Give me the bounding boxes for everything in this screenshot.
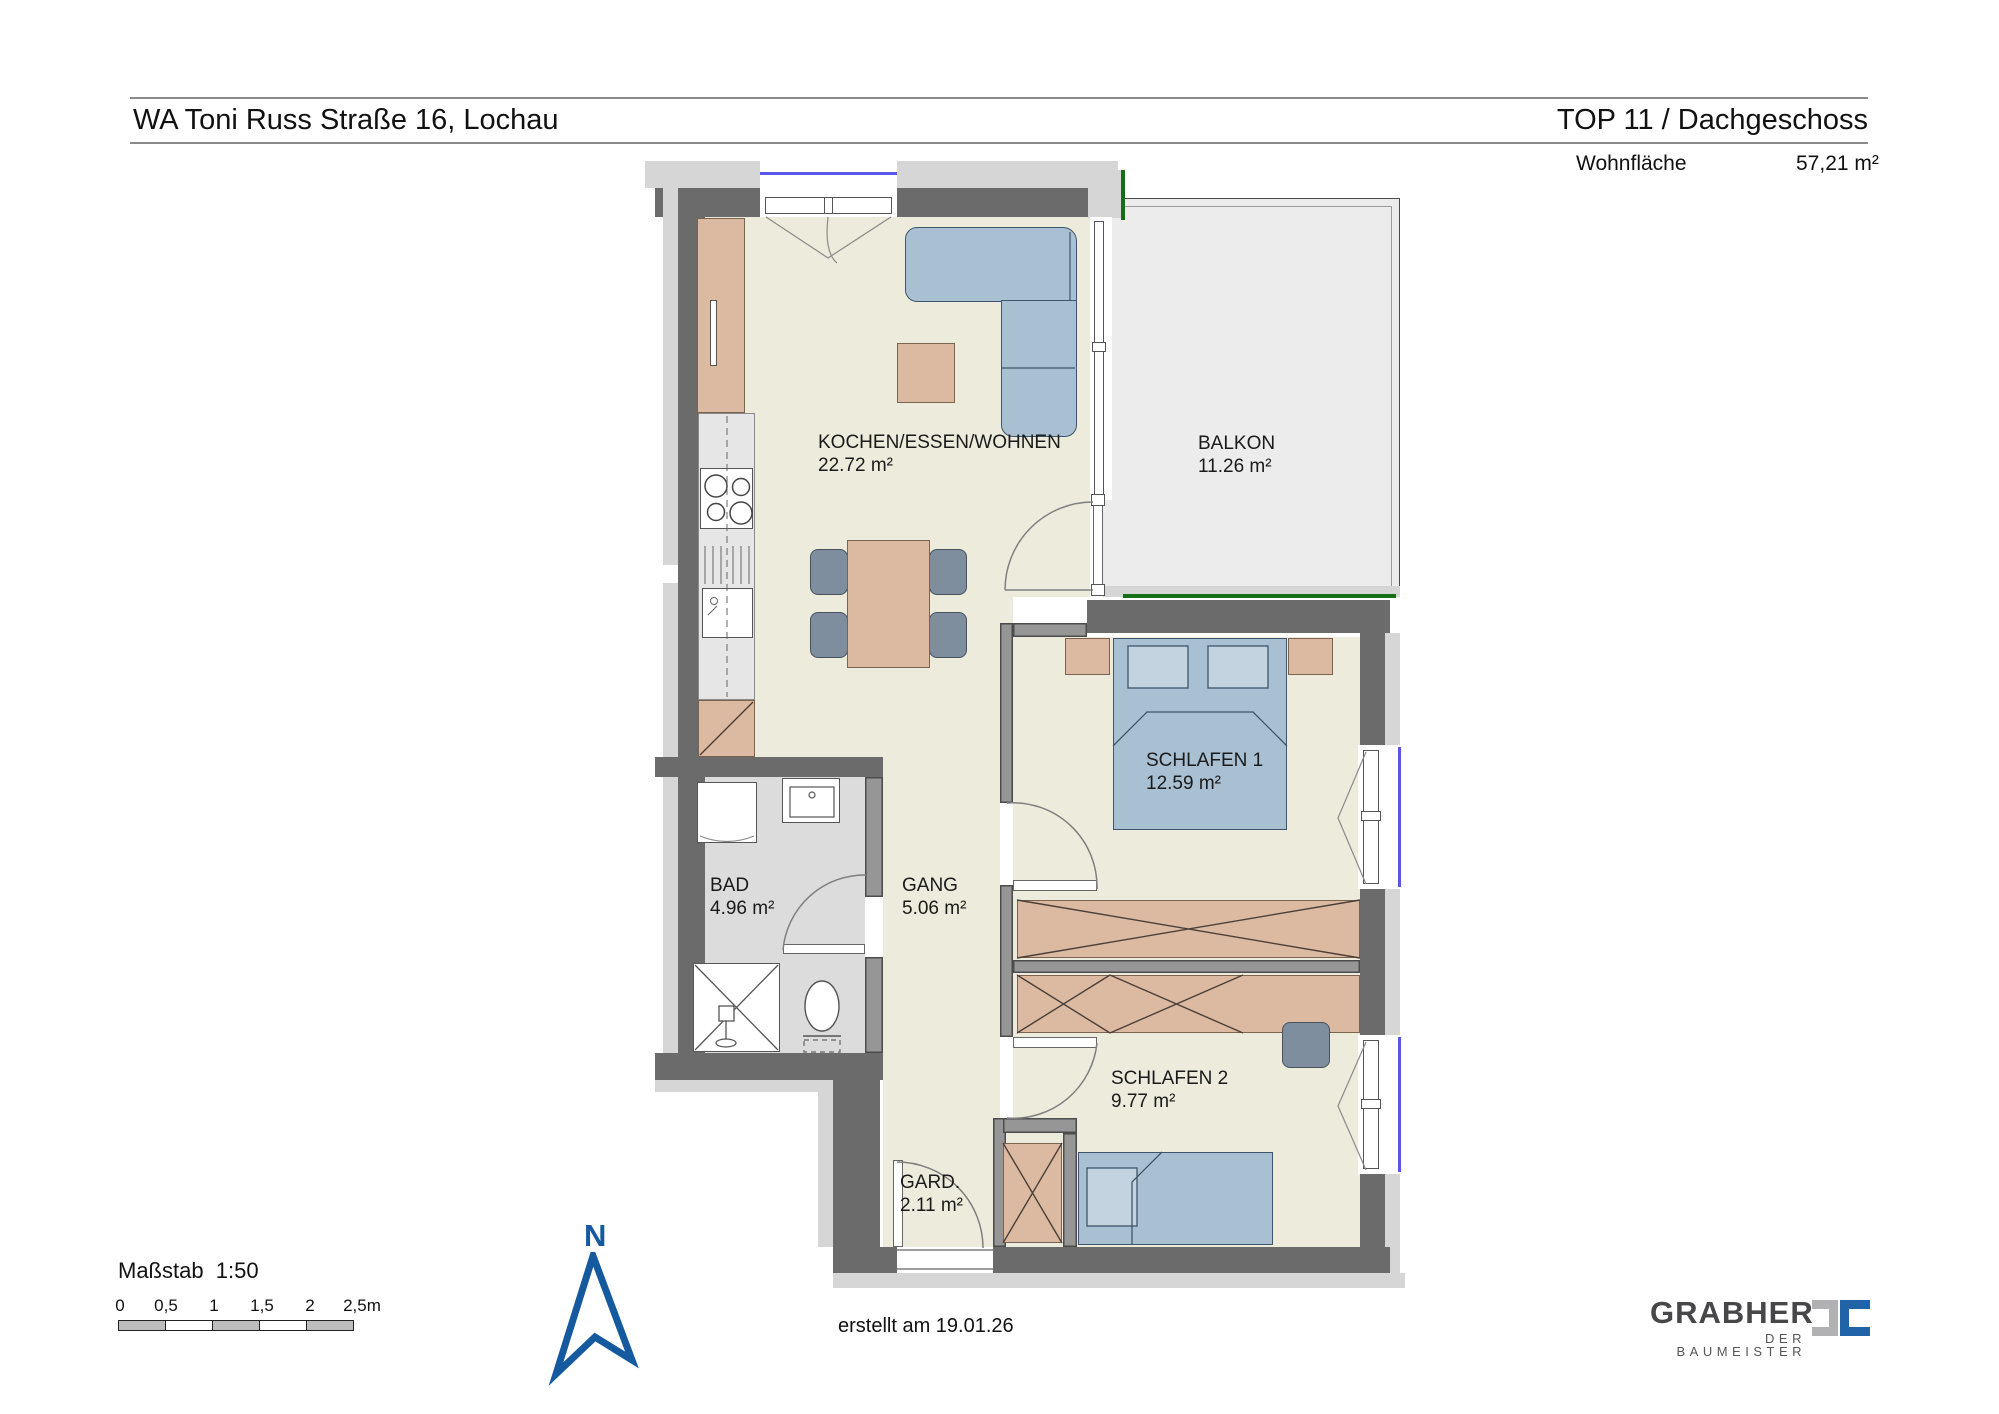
scale-tick: 0,5 [154, 1296, 178, 1316]
shower-lines [695, 965, 778, 1050]
room-area: 11.26 m² [1198, 456, 1275, 479]
scale-tick: 1 [209, 1296, 218, 1316]
room-label-corridor: GANG 5.06 m² [902, 875, 966, 921]
logo-bracket-blue-icon [1840, 1300, 1870, 1336]
room-label-balcony: BALKON 11.26 m² [1198, 433, 1275, 479]
scale-tick: 0 [115, 1296, 124, 1316]
room-label-bath: BAD 4.96 m² [710, 875, 774, 921]
room-name: SCHLAFEN 2 [1111, 1068, 1228, 1091]
stove-burners [705, 475, 752, 524]
logo: GRABHER DER BAUMEISTER [1650, 1297, 1806, 1358]
counter-detail-lines [705, 416, 749, 697]
room-name: GARD. [900, 1172, 963, 1195]
scale-tick: 2,5m [343, 1296, 381, 1316]
room-name: BALKON [1198, 433, 1275, 456]
toilet [803, 981, 841, 1052]
scale-bar-segment [259, 1320, 307, 1331]
plan-linework [0, 0, 1999, 1414]
scale-label: Maßstab 1:50 [118, 1258, 259, 1284]
room-name: BAD [710, 875, 774, 898]
logo-bracket-gray-icon [1812, 1300, 1838, 1336]
room-name: KOCHEN/ESSEN/WOHNEN [818, 432, 1061, 455]
washer-detail [700, 836, 754, 842]
window-opening-lines [766, 217, 1366, 1170]
scale-bar-segment [165, 1320, 213, 1331]
north-label: N [584, 1218, 606, 1254]
scale-bar-segment [306, 1320, 354, 1331]
room-area: 4.96 m² [710, 898, 774, 921]
bath-sink-detail [790, 787, 834, 817]
room-area: 2.11 m² [900, 1195, 963, 1218]
north-arrow-icon [548, 1252, 648, 1397]
logo-name: GRABHER [1650, 1297, 1806, 1328]
room-area: 5.06 m² [902, 898, 966, 921]
room-name: GANG [902, 875, 966, 898]
room-area: 12.59 m² [1146, 773, 1263, 796]
room-label-living: KOCHEN/ESSEN/WOHNEN 22.72 m² [818, 432, 1061, 478]
bed-details [1087, 646, 1287, 1245]
floorplan-page: WA Toni Russ Straße 16, Lochau TOP 11 / … [0, 0, 1999, 1414]
sofa-seams [1001, 232, 1075, 368]
room-area: 9.77 m² [1111, 1091, 1228, 1114]
room-name: SCHLAFEN 1 [1146, 750, 1263, 773]
created-date: erstellt am 19.01.26 [838, 1315, 1014, 1338]
room-label-bedroom1: SCHLAFEN 1 12.59 m² [1146, 750, 1263, 796]
scale-tick: 1,5 [250, 1296, 274, 1316]
room-label-bedroom2: SCHLAFEN 2 9.77 m² [1111, 1068, 1228, 1114]
room-area: 22.72 m² [818, 455, 1061, 478]
scale-tick: 2 [305, 1296, 314, 1316]
room-label-wardrobe: GARD. 2.11 m² [900, 1172, 963, 1218]
logo-tagline: DER BAUMEISTER [1650, 1332, 1806, 1358]
scale-bar-segment [212, 1320, 260, 1331]
scale-bar-segment [118, 1320, 166, 1331]
